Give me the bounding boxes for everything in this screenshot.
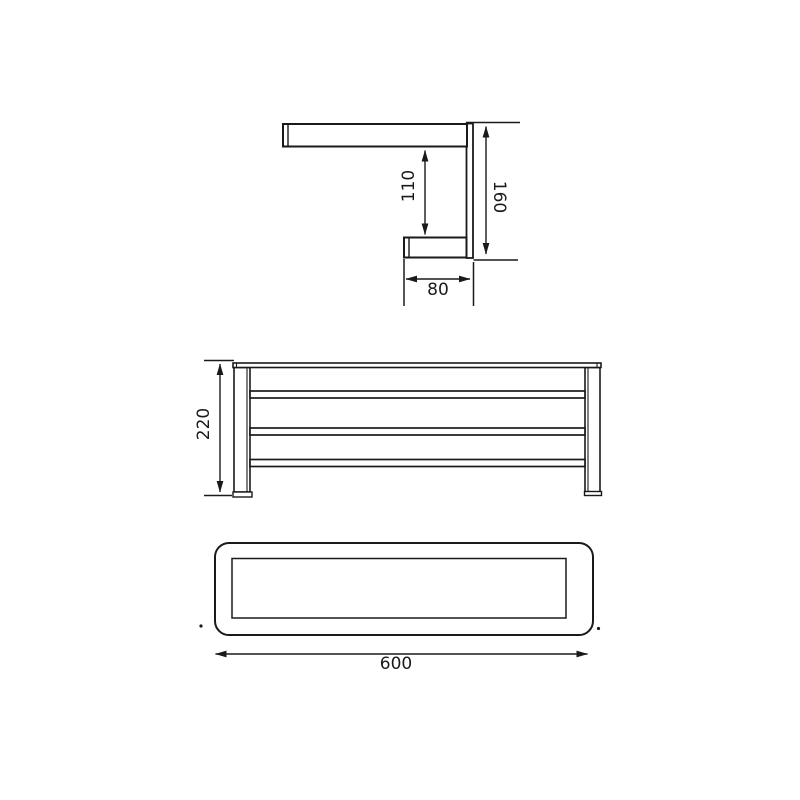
front-right-post — [585, 368, 600, 493]
front-view: 220 — [194, 361, 602, 498]
top-dim-width: 600 — [216, 654, 588, 674]
front-dim-height: 220 — [194, 364, 220, 492]
side-dim-total-height-label: 160 — [489, 181, 509, 213]
side-top-arm — [283, 124, 467, 147]
front-dim-height-label: 220 — [194, 408, 214, 440]
side-dim-depth: 80 — [406, 279, 470, 300]
side-view: 110 160 80 — [283, 123, 520, 307]
technical-drawing-canvas: 110 160 80 — [0, 0, 800, 800]
front-rail-3 — [250, 460, 585, 467]
side-dim-depth-label: 80 — [427, 280, 449, 300]
side-dim-inner-height: 110 — [399, 151, 425, 235]
front-left-post-foot — [233, 492, 252, 497]
top-dim-width-label: 600 — [380, 654, 412, 674]
top-view: 600 — [199, 543, 600, 674]
top-right-corner-mark — [597, 627, 600, 630]
side-bottom-arm — [404, 238, 467, 258]
front-right-post-foot — [585, 492, 602, 496]
technical-drawing-page: 110 160 80 — [0, 0, 800, 800]
front-rail-1 — [250, 391, 585, 398]
front-rail-2 — [250, 428, 585, 435]
top-outer-frame — [215, 543, 593, 635]
front-left-post — [234, 368, 250, 493]
front-top-bar — [233, 363, 601, 368]
top-left-corner-mark — [199, 624, 202, 627]
side-dim-inner-height-label: 110 — [399, 170, 419, 202]
side-dim-total-height: 160 — [486, 127, 509, 255]
